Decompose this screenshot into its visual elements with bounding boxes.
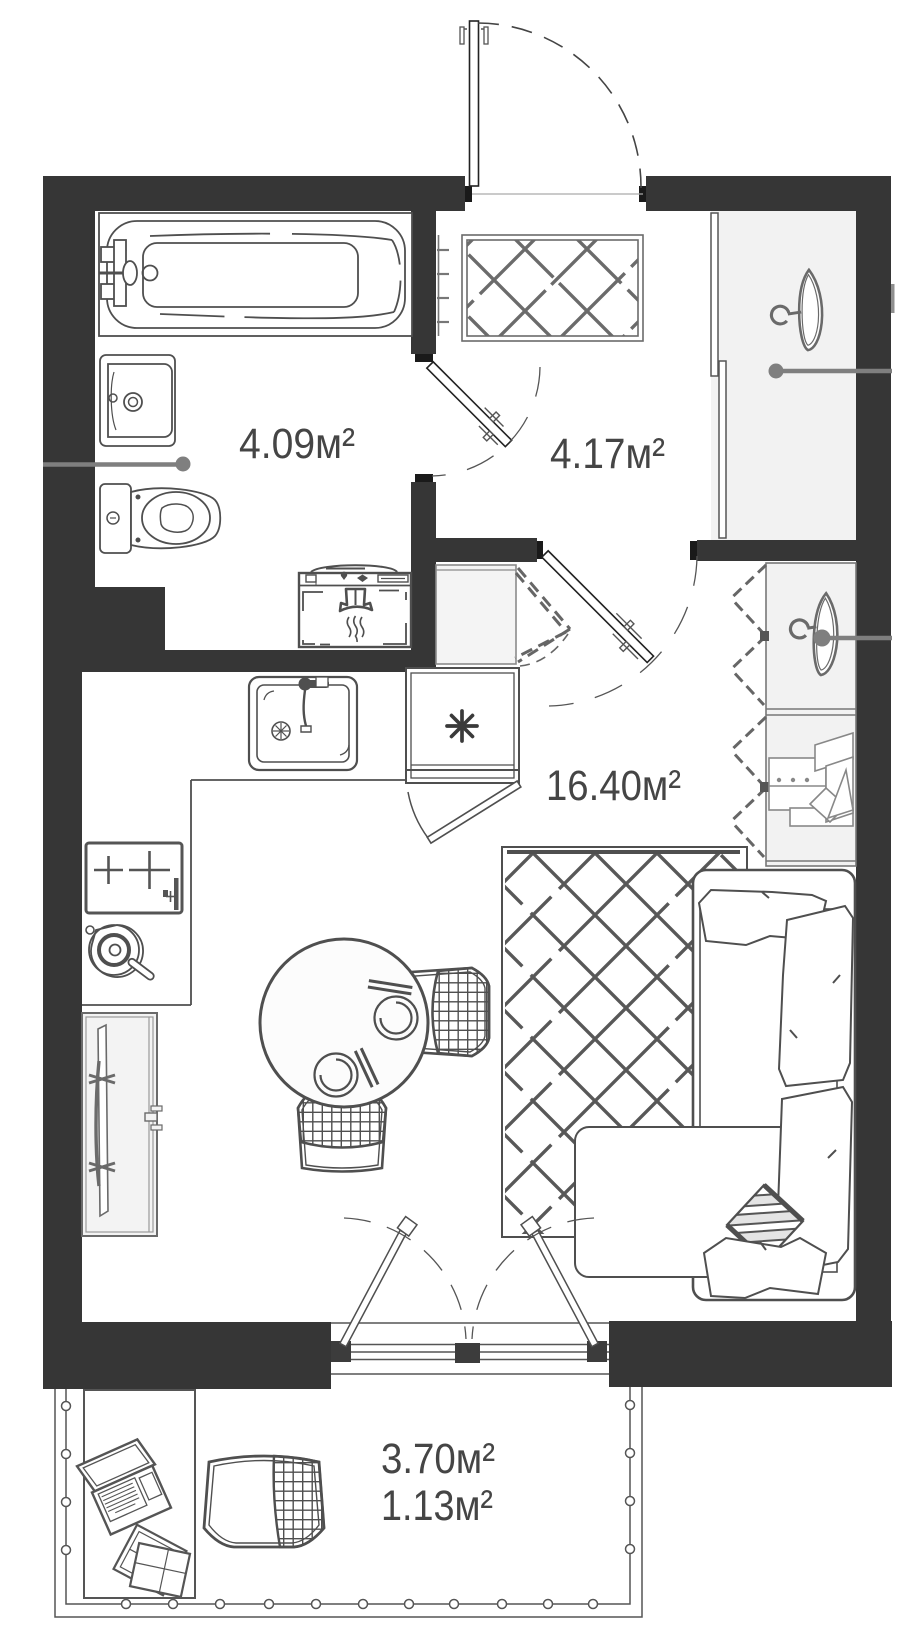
svg-text:4.09м²: 4.09м² (239, 420, 355, 468)
svg-text:4.17м²: 4.17м² (550, 430, 665, 478)
svg-text:1.13м²: 1.13м² (381, 1482, 493, 1530)
svg-text:3.70м²: 3.70м² (381, 1435, 495, 1483)
svg-text:16.40м²: 16.40м² (546, 762, 681, 810)
